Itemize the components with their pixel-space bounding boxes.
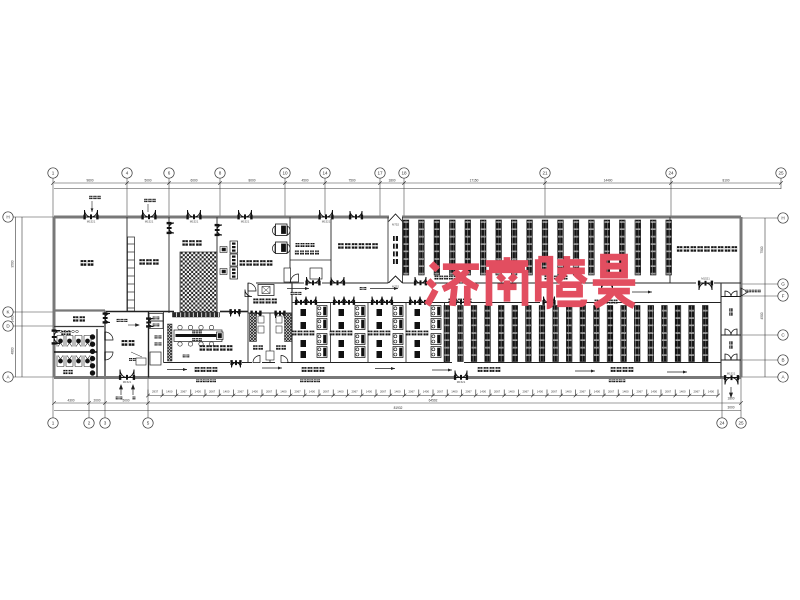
svg-text:2067: 2067: [665, 390, 672, 394]
svg-text:4: 4: [126, 171, 129, 176]
svg-text:1400: 1400: [594, 390, 601, 394]
svg-text:M1521: M1521: [727, 372, 736, 376]
svg-text:1800: 1800: [727, 397, 734, 401]
svg-text:2067: 2067: [608, 390, 615, 394]
svg-text:1400: 1400: [252, 390, 259, 394]
svg-text:1800: 1800: [388, 179, 395, 183]
svg-text:1400: 1400: [708, 390, 715, 394]
svg-text:1400: 1400: [565, 390, 572, 394]
svg-text:14400: 14400: [604, 179, 613, 183]
svg-text:2067: 2067: [237, 390, 244, 394]
svg-text:M1521: M1521: [241, 220, 250, 224]
svg-text:3000: 3000: [727, 406, 734, 410]
svg-text:5: 5: [147, 421, 150, 426]
svg-text:1400: 1400: [537, 390, 544, 394]
svg-text:1400: 1400: [622, 390, 629, 394]
svg-text:5000: 5000: [144, 179, 151, 183]
svg-text:9600: 9600: [86, 179, 93, 183]
svg-text:1: 1: [52, 171, 55, 176]
svg-text:M1521: M1521: [322, 220, 331, 224]
svg-text:G: G: [781, 282, 785, 287]
svg-text:1400: 1400: [366, 390, 373, 394]
svg-text:24: 24: [668, 171, 674, 176]
svg-text:14: 14: [322, 171, 328, 176]
svg-text:2067: 2067: [579, 390, 586, 394]
svg-text:17: 17: [377, 171, 383, 176]
svg-text:1400: 1400: [280, 390, 287, 394]
svg-text:1400: 1400: [223, 390, 230, 394]
svg-text:1400: 1400: [651, 390, 658, 394]
svg-text:7500: 7500: [348, 179, 355, 183]
svg-text:2937: 2937: [152, 390, 159, 394]
svg-text:25: 25: [738, 421, 744, 426]
svg-text:2067: 2067: [380, 390, 387, 394]
svg-text:1400: 1400: [423, 390, 430, 394]
svg-text:4500: 4500: [760, 312, 764, 319]
svg-text:2067: 2067: [209, 390, 216, 394]
svg-text:2067: 2067: [693, 390, 700, 394]
svg-text:1400: 1400: [508, 390, 515, 394]
svg-text:2067: 2067: [408, 390, 415, 394]
svg-text:18: 18: [401, 171, 407, 176]
svg-text:8100: 8100: [722, 179, 729, 183]
svg-text:10: 10: [282, 171, 288, 176]
svg-text:1400: 1400: [394, 390, 401, 394]
svg-text:1400: 1400: [309, 390, 316, 394]
svg-text:M1521: M1521: [457, 380, 466, 384]
svg-text:M1521: M1521: [145, 220, 154, 224]
svg-text:81932: 81932: [394, 406, 403, 410]
svg-text:B: B: [781, 358, 784, 363]
svg-text:M752: M752: [392, 223, 399, 227]
svg-text:2000: 2000: [93, 398, 100, 402]
svg-text:M1521: M1521: [190, 220, 199, 224]
svg-text:H: H: [781, 216, 784, 221]
svg-text:2067: 2067: [494, 390, 501, 394]
svg-text:2067: 2067: [551, 390, 558, 394]
svg-text:6: 6: [168, 171, 171, 176]
svg-text:2067: 2067: [266, 390, 273, 394]
svg-text:M1521: M1521: [701, 277, 710, 281]
svg-text:6000: 6000: [190, 179, 197, 183]
svg-text:2067: 2067: [636, 390, 643, 394]
svg-text:9500: 9500: [11, 260, 15, 267]
svg-text:7500: 7500: [760, 246, 764, 253]
svg-text:4800: 4800: [11, 347, 15, 354]
svg-text:M1521: M1521: [123, 380, 132, 384]
svg-text:25: 25: [778, 171, 784, 176]
svg-text:1400: 1400: [337, 390, 344, 394]
svg-text:64592: 64592: [429, 398, 438, 402]
svg-text:4500: 4500: [301, 179, 308, 183]
svg-text:1400: 1400: [679, 390, 686, 394]
svg-text:2067: 2067: [465, 390, 472, 394]
svg-text:1: 1: [52, 421, 55, 426]
svg-text:24: 24: [719, 421, 725, 426]
svg-text:5000: 5000: [122, 398, 129, 402]
svg-text:1400: 1400: [480, 390, 487, 394]
svg-text:17150: 17150: [470, 179, 479, 183]
svg-text:21: 21: [542, 171, 548, 176]
svg-text:2067: 2067: [180, 390, 187, 394]
svg-text:H: H: [6, 215, 9, 220]
svg-text:3: 3: [104, 421, 107, 426]
svg-text:4300: 4300: [67, 398, 74, 402]
svg-text:2067: 2067: [323, 390, 330, 394]
svg-text:2067: 2067: [294, 390, 301, 394]
svg-text:2067: 2067: [437, 390, 444, 394]
svg-text:F: F: [782, 294, 785, 299]
svg-text:1400: 1400: [195, 390, 202, 394]
svg-text:8000: 8000: [248, 179, 255, 183]
svg-text:2067: 2067: [522, 390, 529, 394]
svg-text:1400: 1400: [451, 390, 458, 394]
svg-text:2067: 2067: [351, 390, 358, 394]
svg-text:8: 8: [219, 171, 222, 176]
svg-text:M1521: M1521: [87, 220, 96, 224]
svg-text:2: 2: [88, 421, 91, 426]
svg-text:1400: 1400: [166, 390, 173, 394]
